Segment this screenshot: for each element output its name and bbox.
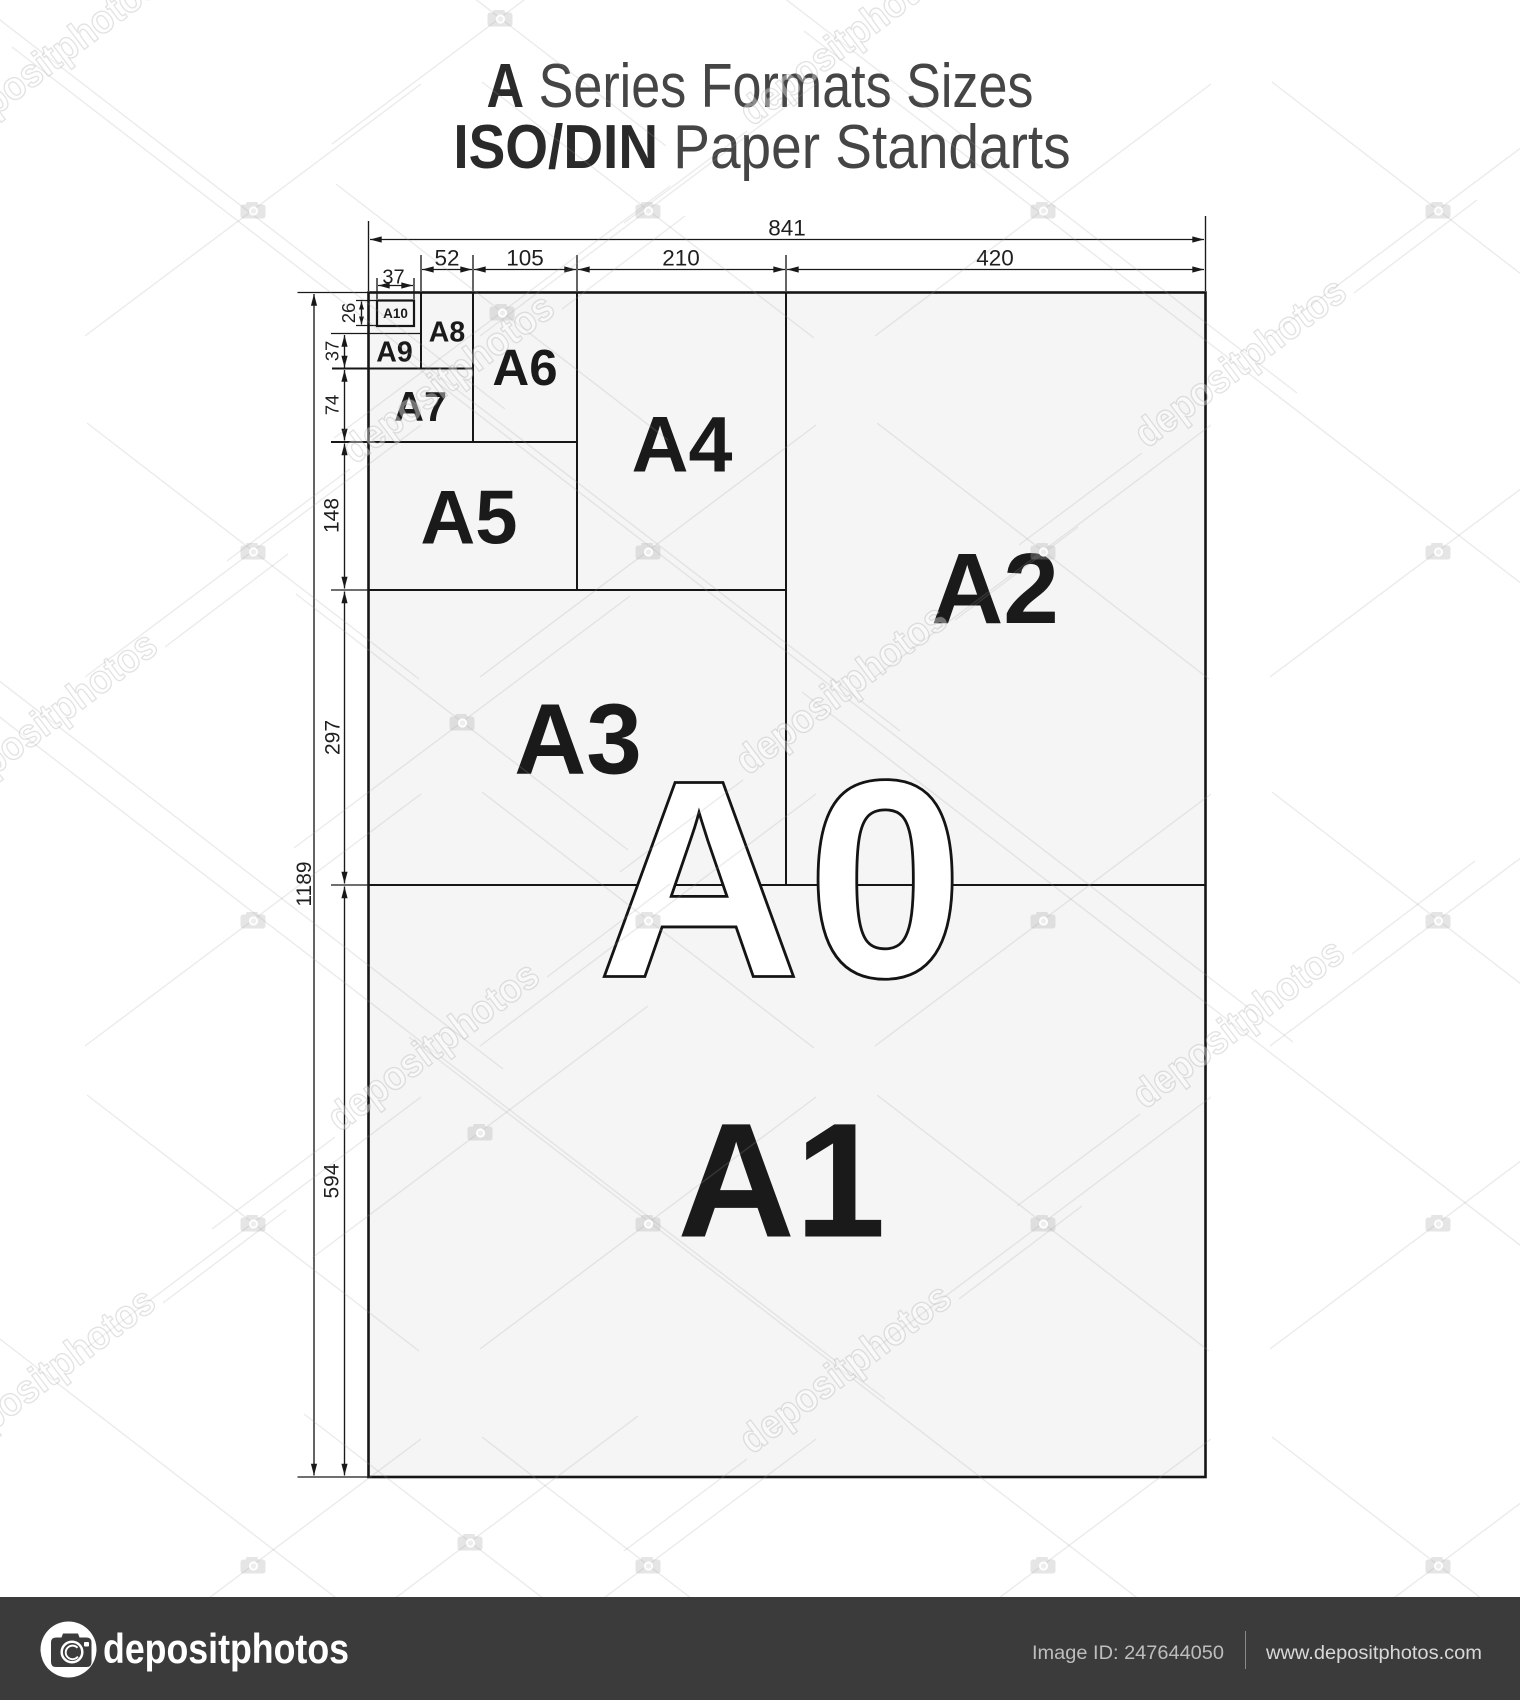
svg-text:A0: A0	[597, 722, 970, 1037]
svg-text:37: 37	[322, 341, 343, 362]
svg-text:depositphotos: depositphotos	[103, 1625, 349, 1672]
svg-text:37: 37	[382, 267, 404, 289]
svg-text:A1: A1	[677, 1089, 885, 1272]
svg-text:420: 420	[976, 246, 1014, 271]
svg-text:A5: A5	[420, 476, 517, 561]
svg-text:52: 52	[434, 246, 459, 271]
svg-text:74: 74	[322, 395, 343, 416]
svg-text:A4: A4	[632, 399, 733, 488]
svg-text:105: 105	[506, 246, 544, 271]
svg-text:297: 297	[322, 720, 345, 755]
svg-text:www.depositphotos.com: www.depositphotos.com	[1265, 1642, 1482, 1664]
svg-text:1189: 1189	[293, 861, 316, 906]
svg-text:210: 210	[662, 246, 700, 271]
svg-text:594: 594	[321, 1163, 344, 1198]
svg-text:841: 841	[768, 216, 806, 241]
svg-text:148: 148	[321, 498, 344, 533]
svg-text:Image ID: 247644050: Image ID: 247644050	[1032, 1642, 1224, 1664]
